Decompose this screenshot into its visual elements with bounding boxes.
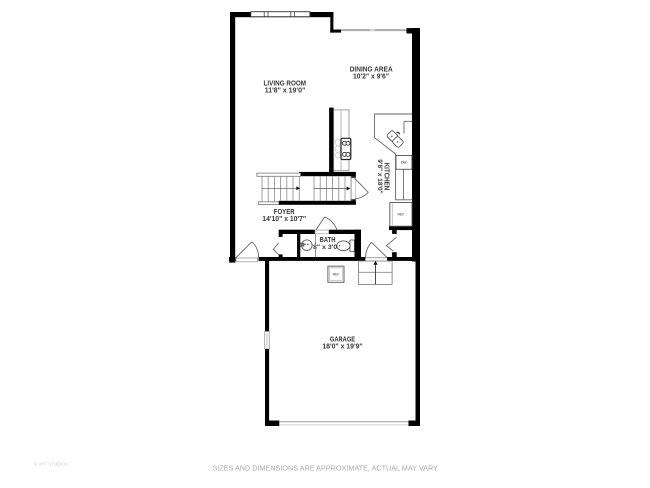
- svg-text:14'10" x 10'7": 14'10" x 10'7": [262, 216, 306, 223]
- svg-text:9'8" x 18'0": 9'8" x 18'0": [376, 159, 383, 193]
- svg-text:18'0" x 19'9": 18'0" x 19'9": [322, 343, 362, 350]
- svg-text:GARAGE: GARAGE: [330, 334, 355, 343]
- svg-text:11'8" x 19'0": 11'8" x 19'0": [265, 88, 306, 95]
- svg-text:LIVING ROOM: LIVING ROOM: [264, 79, 307, 88]
- svg-text:DW: DW: [401, 161, 407, 165]
- svg-text:SIZES AND DIMENSIONS ARE APPRO: SIZES AND DIMENSIONS ARE APPROXIMATE, AC…: [212, 464, 439, 473]
- svg-text:© VHT STUDIOS: © VHT STUDIOS: [34, 461, 68, 467]
- svg-text:REF: REF: [333, 273, 340, 277]
- svg-text:REF: REF: [398, 213, 405, 217]
- svg-text:DINING AREA: DINING AREA: [350, 65, 394, 74]
- svg-text:BATH: BATH: [320, 237, 336, 244]
- svg-text:FOYER: FOYER: [274, 207, 295, 216]
- svg-text:10'2" x 9'6": 10'2" x 9'6": [353, 74, 389, 81]
